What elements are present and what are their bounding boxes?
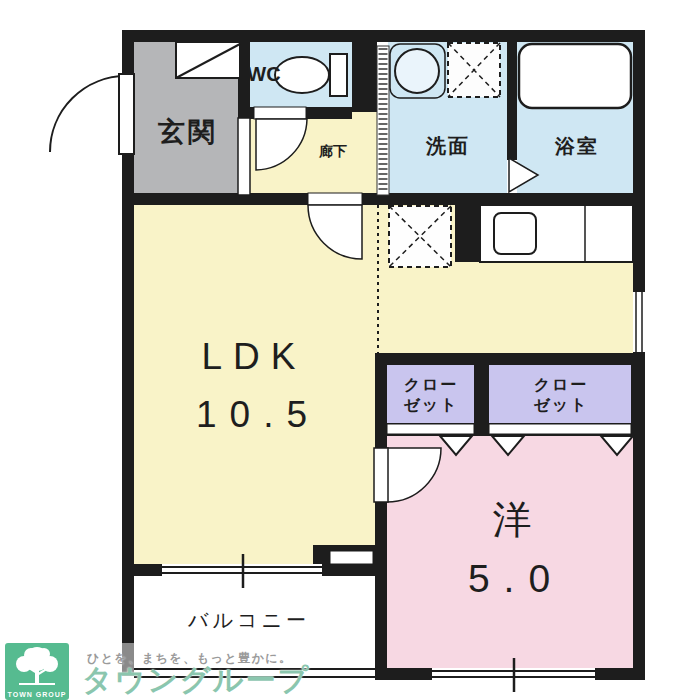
window-right-icon xyxy=(633,292,645,352)
label-closet1: クロー ゼット xyxy=(403,375,458,415)
town-group-logo: TOWN GROUP xyxy=(5,643,69,700)
brand-company-name: タウングループ xyxy=(82,660,310,700)
label-genkan: 玄関 xyxy=(158,116,218,150)
wall-top xyxy=(122,30,645,42)
closet2-threshold xyxy=(489,424,631,434)
logo-title: TOWN GROUP xyxy=(5,691,69,698)
ldk-jog-notch xyxy=(330,551,373,564)
label-western-room-size: 5.0 xyxy=(468,555,564,604)
label-closet2: クロー ゼット xyxy=(533,375,588,415)
tree-icon xyxy=(5,643,69,687)
label-balcony: バルコニー xyxy=(188,608,310,633)
floor-plan-image: 玄関 WC 廊下 洗面 浴室 LDK 10.5 クロー ゼット クロー ゼット … xyxy=(0,0,700,700)
floor-plan-drawing xyxy=(0,0,700,700)
wall-right xyxy=(633,42,645,680)
label-wc: WC xyxy=(247,62,280,87)
sliding-door-icon xyxy=(377,46,389,195)
refrigerator-icon xyxy=(389,206,451,267)
label-bathroom: 浴室 xyxy=(555,134,599,159)
wall-kitchen-stub xyxy=(455,205,480,262)
label-washroom: 洗面 xyxy=(426,134,470,159)
bathtub-icon xyxy=(519,44,631,108)
label-hallway: 廊下 xyxy=(319,143,347,161)
washing-machine-icon xyxy=(448,43,500,97)
room-ldk-lower xyxy=(134,353,375,576)
toilet-icon xyxy=(275,54,347,96)
label-western-room: 洋 xyxy=(493,496,532,545)
wall-wc-hall-corner xyxy=(352,42,377,112)
closet1-threshold xyxy=(387,424,474,434)
label-ldk-size: 10.5 xyxy=(196,392,320,438)
kitchen-sink-icon xyxy=(494,213,536,254)
kitchen-counter-icon xyxy=(480,205,633,262)
entrance-door-swing-icon xyxy=(50,74,134,154)
genkan-step xyxy=(238,118,250,195)
shoe-cabinet-icon xyxy=(176,42,240,78)
label-ldk: LDK xyxy=(202,334,307,380)
